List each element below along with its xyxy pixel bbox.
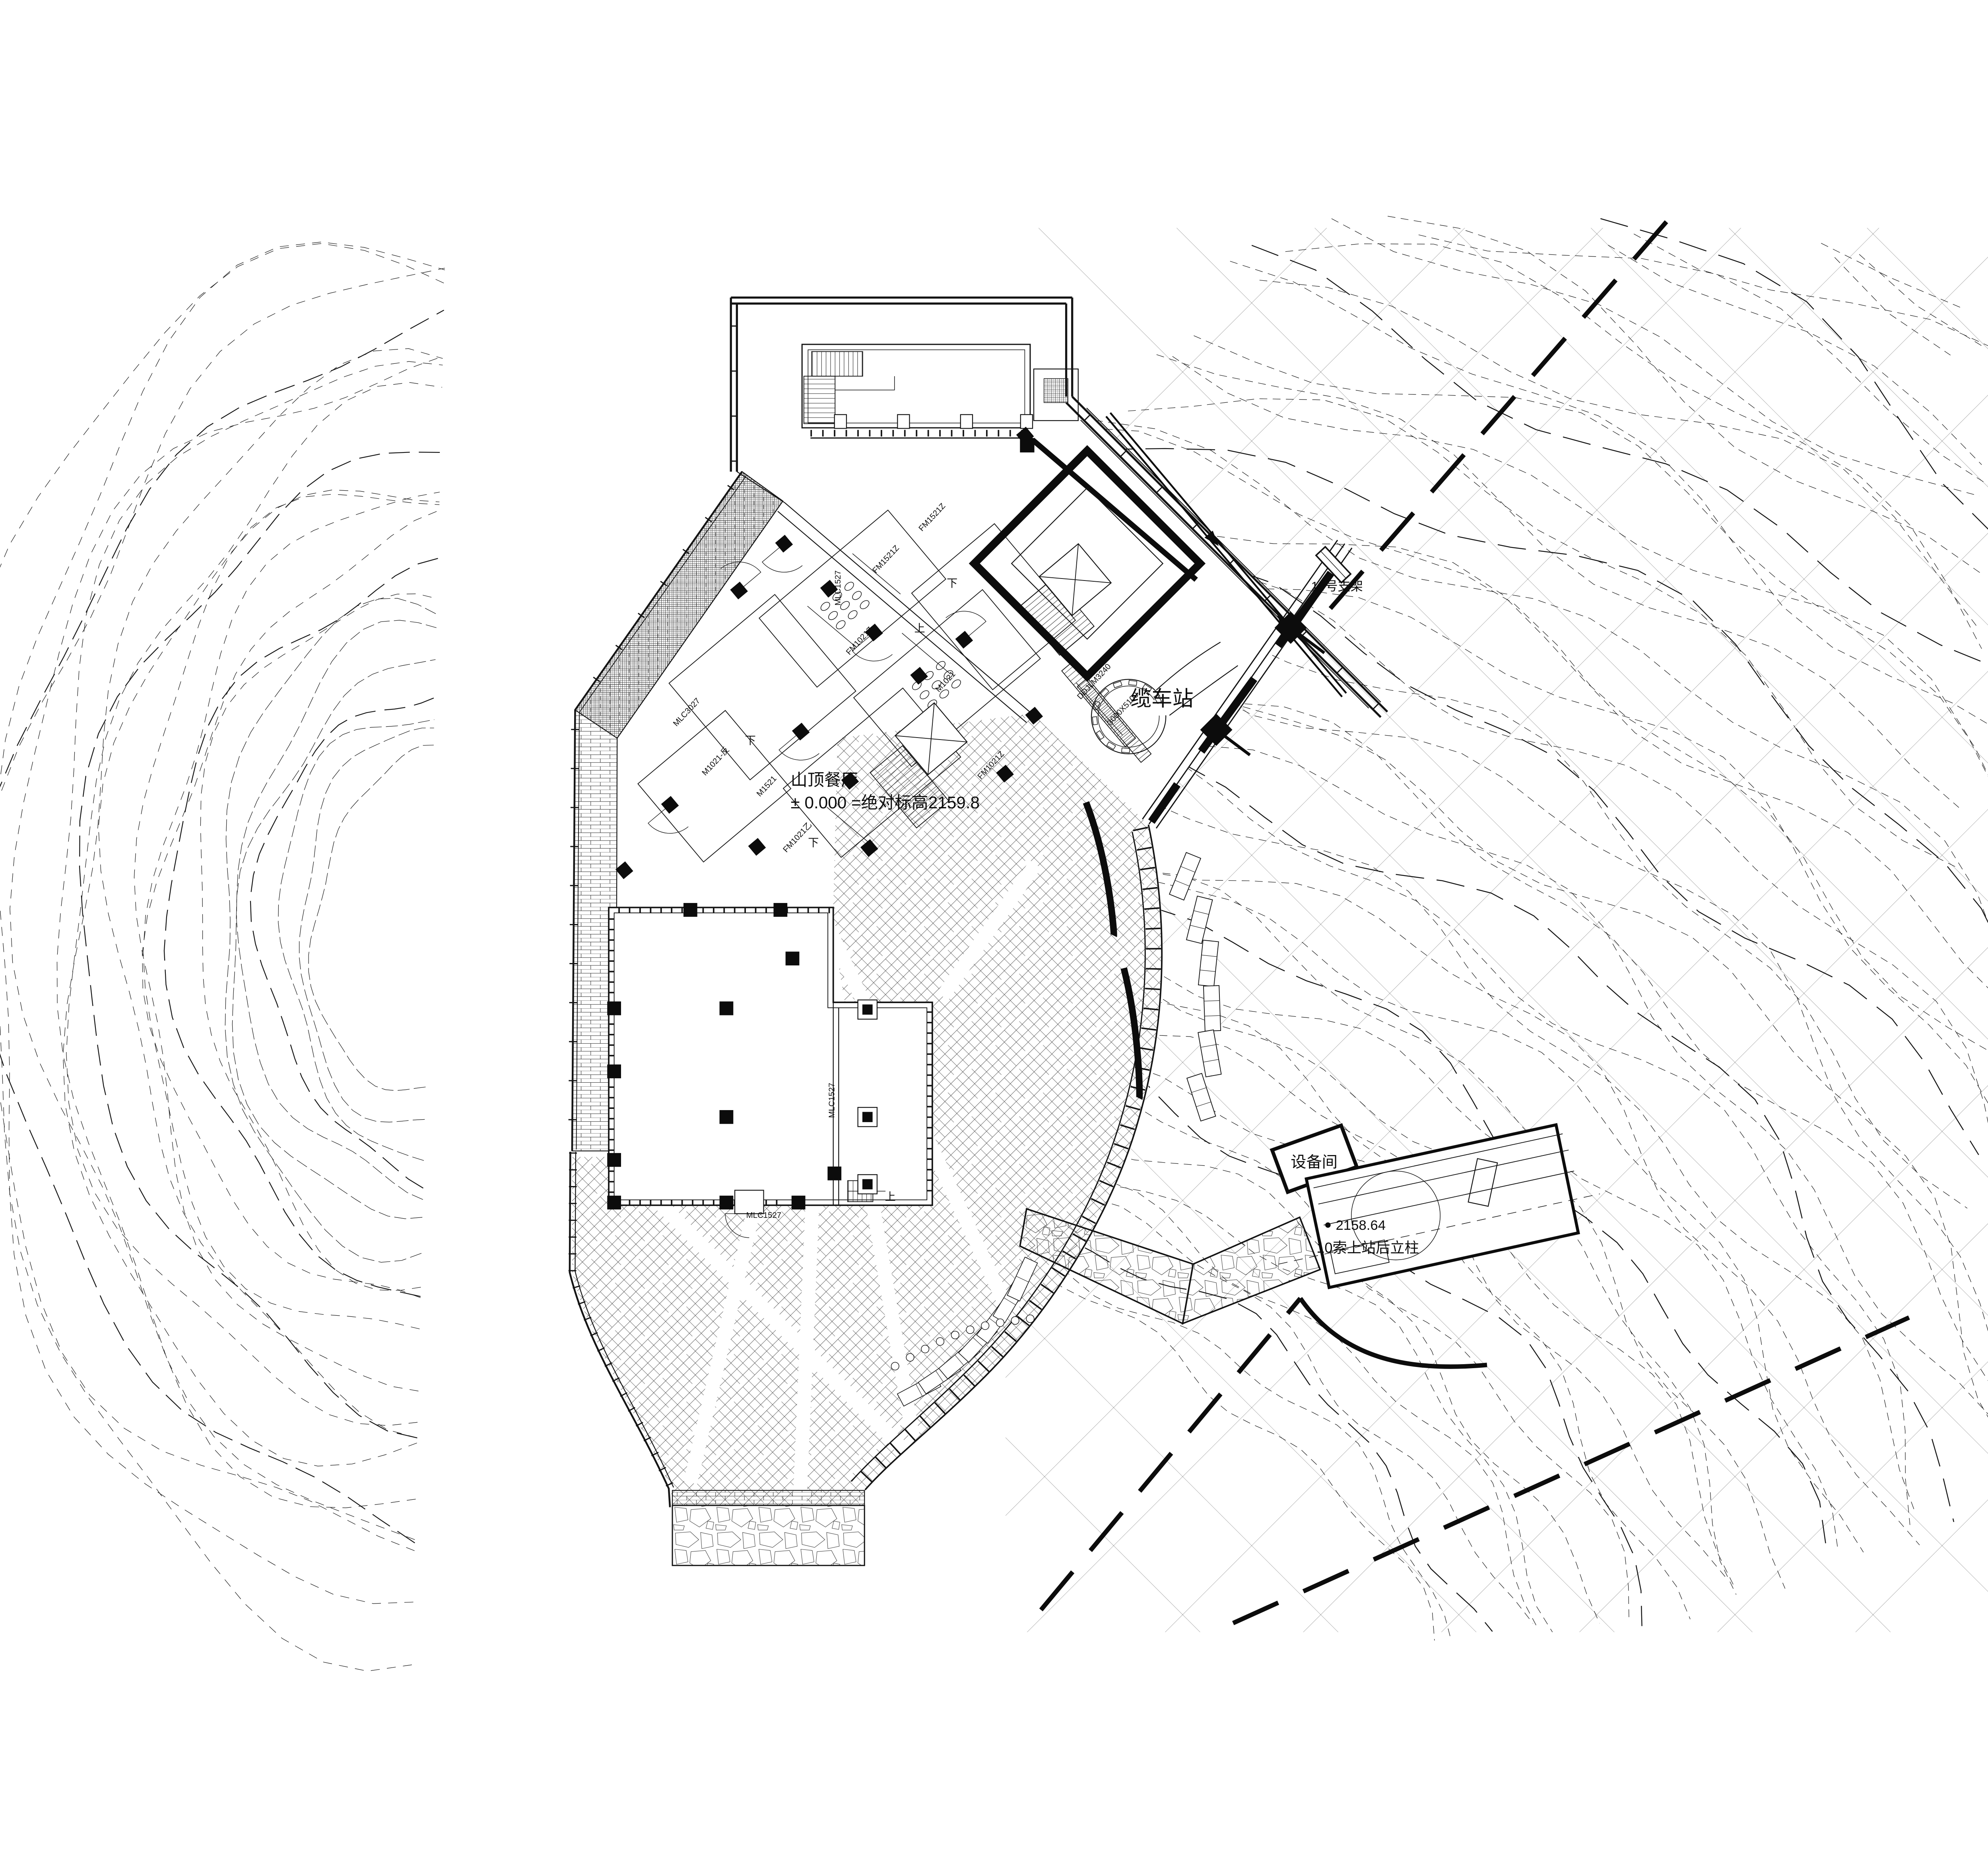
hall-column: [607, 1153, 621, 1167]
contour-line: [134, 494, 439, 1391]
hall-column: [792, 1196, 806, 1210]
hall-column: [607, 1002, 621, 1015]
label-tower-14: 14号支架: [1311, 579, 1363, 593]
hall-column: [607, 1064, 621, 1078]
direction-mark: 上: [914, 622, 925, 634]
contour-line: [1285, 244, 1982, 648]
label-restaurant-datum: ± 0.000 =绝对标高2159.8: [791, 793, 980, 812]
contour-line: [232, 620, 436, 1219]
drain-circle: [981, 1322, 989, 1330]
bench: [1169, 852, 1201, 900]
bench: [1198, 1030, 1221, 1077]
contour-line: [57, 361, 443, 1508]
drain-circle: [966, 1326, 974, 1334]
hall-column: [683, 903, 697, 917]
contour-line: [1388, 216, 1981, 574]
roof-stair: [812, 351, 862, 376]
contour-line: [1157, 355, 1959, 808]
pilaster: [961, 415, 973, 429]
hall-column: [786, 951, 800, 965]
boundary-dashed-ne: [1330, 219, 1669, 609]
hall-column: [773, 903, 787, 917]
door-tag: MLC1527: [746, 1211, 781, 1220]
pilaster: [835, 415, 846, 429]
label-spot-elevation: 2158.64: [1336, 1218, 1386, 1233]
label-restaurant-name: 山顶餐厅: [791, 771, 858, 789]
drain-circle: [1011, 1316, 1019, 1324]
spot-elevation-dot: [1325, 1222, 1331, 1228]
flagstone-path-east: [1182, 1217, 1320, 1323]
contour-line: [0, 243, 445, 1671]
contour-line: [1252, 245, 1988, 672]
pilaster: [897, 415, 909, 429]
boundary-dashed-se: [1233, 1318, 1909, 1623]
contour-line: [0, 242, 445, 1604]
contour-line: [142, 511, 439, 1298]
contour-line: [1634, 234, 1988, 351]
contour-line: [1859, 254, 1981, 346]
contour-line: [66, 382, 442, 1425]
hall-column: [720, 1002, 734, 1015]
contour-line: [0, 268, 445, 1551]
contour-line: [309, 745, 434, 1091]
drain-circle: [891, 1362, 899, 1370]
bench: [1198, 940, 1219, 986]
site-plan-drawing: 缆车站山顶餐厅± 0.000 =绝对标高2159.8设备间10索上站后立柱215…: [0, 0, 1988, 1860]
bench: [1187, 1074, 1215, 1121]
contour-line: [1600, 219, 1988, 534]
roof-stair-lower: [804, 376, 835, 423]
door-tag: MLC1527: [834, 571, 843, 606]
hall-column: [720, 1196, 734, 1210]
drain-circle: [921, 1345, 929, 1353]
contour-line: [278, 720, 435, 1161]
direction-mark: 下: [745, 734, 756, 747]
contour-line: [1419, 235, 1988, 495]
label-pylon-label: 10索上站后立柱: [1316, 1240, 1419, 1256]
boundary-dashed-s: [1041, 1298, 1300, 1610]
drain-circle: [996, 1319, 1004, 1327]
label-cable-car-station: 缆车站: [1130, 687, 1193, 711]
bottom-flagstone-band: [672, 1505, 864, 1565]
contour-line: [63, 349, 443, 1466]
contour-line: [237, 660, 436, 1200]
contour-line: [1173, 356, 1988, 793]
direction-mark: 下: [947, 577, 957, 589]
pilaster: [1021, 415, 1033, 429]
contour-line: [0, 310, 444, 1543]
plaza-benches: [1169, 852, 1221, 1121]
contour-line: [225, 598, 437, 1262]
contour-lines-west-slope: [0, 242, 445, 1671]
contour-line: [143, 492, 440, 1329]
site-boundary-lines: [1041, 219, 1909, 1623]
hall-column: [827, 1167, 841, 1180]
drain-circle: [936, 1338, 944, 1345]
contour-line: [1260, 280, 1978, 628]
bottom-paver-course: [672, 1490, 864, 1505]
label-equipment-room: 设备间: [1291, 1153, 1338, 1171]
direction-mark: 上: [885, 1190, 896, 1203]
hall-column: [607, 1196, 621, 1210]
drain-circle: [906, 1353, 914, 1361]
door-tag: MLC1527: [828, 1083, 837, 1118]
retaining-wall-curve: [1300, 1298, 1487, 1367]
contour-line: [99, 490, 440, 1438]
drain-circle: [1026, 1315, 1034, 1323]
contour-line: [250, 698, 435, 1188]
bench: [1204, 986, 1221, 1031]
contour-line: [1821, 243, 1962, 308]
contour-line: [10, 356, 443, 1540]
hall-column: [720, 1110, 734, 1124]
drain-circle: [951, 1331, 959, 1339]
contour-line: [299, 728, 434, 1122]
contour-line: [1332, 219, 1979, 496]
contour-line: [1194, 336, 1988, 808]
direction-mark: 下: [808, 836, 819, 848]
contour-line: [1835, 257, 1950, 355]
site-plan-page: 缆车站山顶餐厅± 0.000 =绝对标高2159.8设备间10索上站后立柱215…: [0, 0, 1988, 1860]
